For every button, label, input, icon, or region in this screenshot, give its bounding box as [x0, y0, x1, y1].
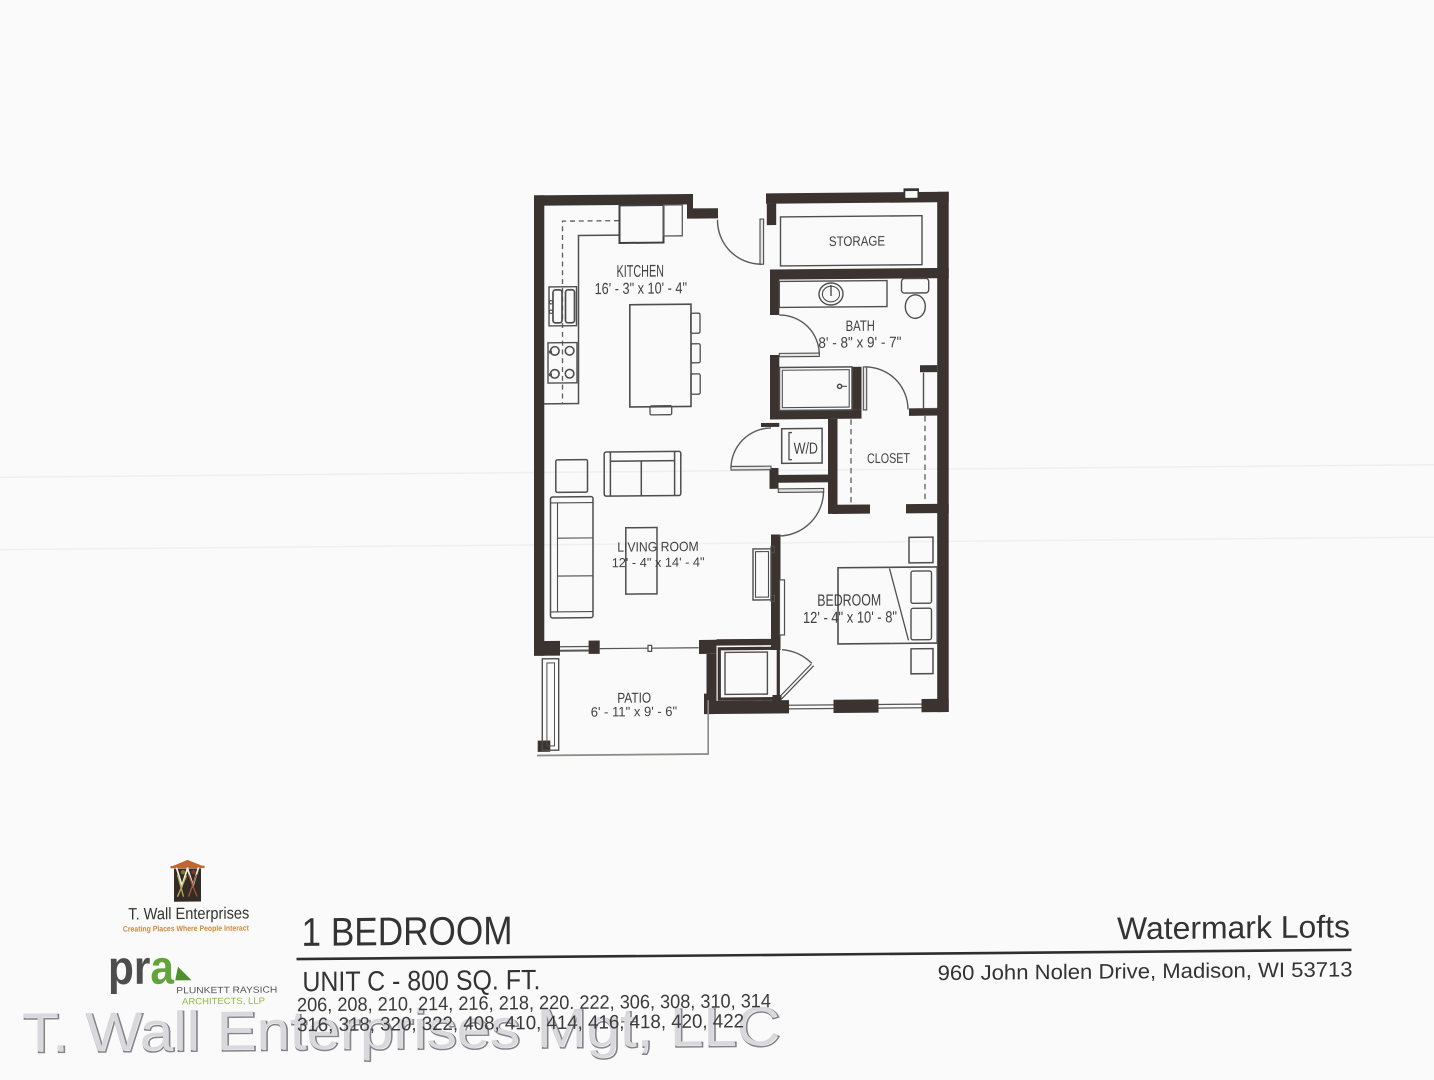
svg-text:6' - 11" x 9' - 6": 6' - 11" x 9' - 6"	[591, 704, 678, 720]
svg-text:960 John Nolen Drive, Madison,: 960 John Nolen Drive, Madison, WI 53713	[938, 958, 1353, 985]
svg-text:316, 318, 320, 322, 408, 410,: 316, 318, 320, 322, 408, 410, 414, 416, …	[297, 1010, 744, 1036]
svg-text:pra: pra	[108, 942, 174, 996]
svg-text:16' - 3" x 10' - 4": 16' - 3" x 10' - 4"	[595, 280, 687, 298]
svg-text:W/D: W/D	[794, 441, 818, 458]
svg-text:T. Wall Enterprises: T. Wall Enterprises	[128, 904, 249, 923]
svg-text:Creating Places Where People I: Creating Places Where People Interact	[123, 924, 249, 934]
svg-text:BATH: BATH	[846, 318, 875, 335]
svg-text:Watermark Lofts: Watermark Lofts	[1117, 908, 1350, 946]
svg-text:STORAGE: STORAGE	[829, 234, 885, 249]
svg-text:12' - 4" x 14' - 4": 12' - 4" x 14' - 4"	[612, 554, 705, 570]
svg-text:LIVING ROOM: LIVING ROOM	[617, 539, 699, 555]
svg-text:12' - 4" x 10' - 8": 12' - 4" x 10' - 8"	[803, 609, 897, 627]
svg-text:PLUNKETT RAYSICH: PLUNKETT RAYSICH	[176, 985, 277, 996]
svg-text:8' - 8" x 9' - 7": 8' - 8" x 9' - 7"	[818, 334, 901, 352]
svg-text:KITCHEN: KITCHEN	[617, 262, 665, 281]
svg-text:1 BEDROOM: 1 BEDROOM	[302, 909, 513, 955]
svg-text:CLOSET: CLOSET	[867, 450, 910, 466]
svg-text:BEDROOM: BEDROOM	[817, 591, 881, 610]
